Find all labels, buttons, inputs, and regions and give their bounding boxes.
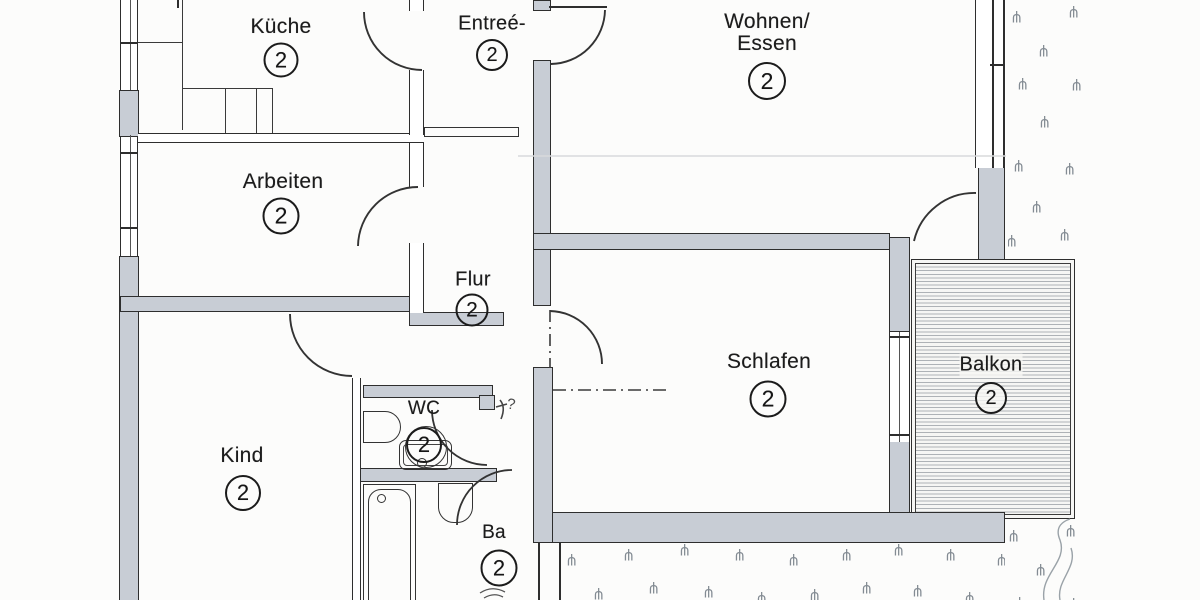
room-label-wc: WC [408, 398, 440, 420]
room-badge-entree: 2 [476, 39, 508, 71]
scan-squiggle-ba [480, 589, 505, 593]
room-badge-arbeiten: 2 [263, 198, 300, 235]
garden-path-curve [1060, 548, 1073, 600]
room-badge-bad: 2 [481, 550, 518, 587]
door-arc-entrance [551, 10, 605, 64]
garden-path-curve [1044, 519, 1070, 600]
room-label-kind: Kind [220, 444, 263, 468]
room-label-bad: Ba [482, 522, 506, 544]
room-badge-flur: 2 [456, 294, 489, 327]
room-badge-wohnen: 2 [748, 62, 786, 100]
room-label-schlafen: Schlafen [727, 350, 811, 374]
door-arc-kind [290, 314, 352, 376]
room-badge-schlafen: 2 [750, 381, 787, 418]
room-badge-wc: 2 [406, 427, 442, 463]
scan-squiggle-ba [484, 595, 503, 598]
door-arc-arbeiten [358, 187, 418, 246]
room-badge-balkon: 2 [975, 382, 1007, 414]
room-label-entree: Entreé- [458, 13, 526, 36]
room-label-wohnen: Wohnen/ Essen [724, 11, 810, 55]
room-label-kueche: Küche [250, 15, 311, 39]
room-badge-kind: 2 [225, 475, 261, 511]
door-arc-schlafen [550, 311, 602, 364]
room-label-balkon: Balkon [960, 354, 1023, 377]
room-label-flur: Flur [455, 269, 491, 292]
room-label-arbeiten: Arbeiten [243, 170, 324, 194]
door-arc-bad [457, 470, 512, 525]
plan-linework-overlay [0, 0, 1200, 600]
room-badge-kueche: 2 [264, 43, 299, 78]
door-arc-kueche [364, 12, 422, 70]
door-arc-balkon [914, 193, 976, 241]
floorplan-sheet: ψψψψψψψψψψψψψψψψ ψψψψψψψψψψψψψψψψψψψψψψψ… [0, 0, 1200, 600]
